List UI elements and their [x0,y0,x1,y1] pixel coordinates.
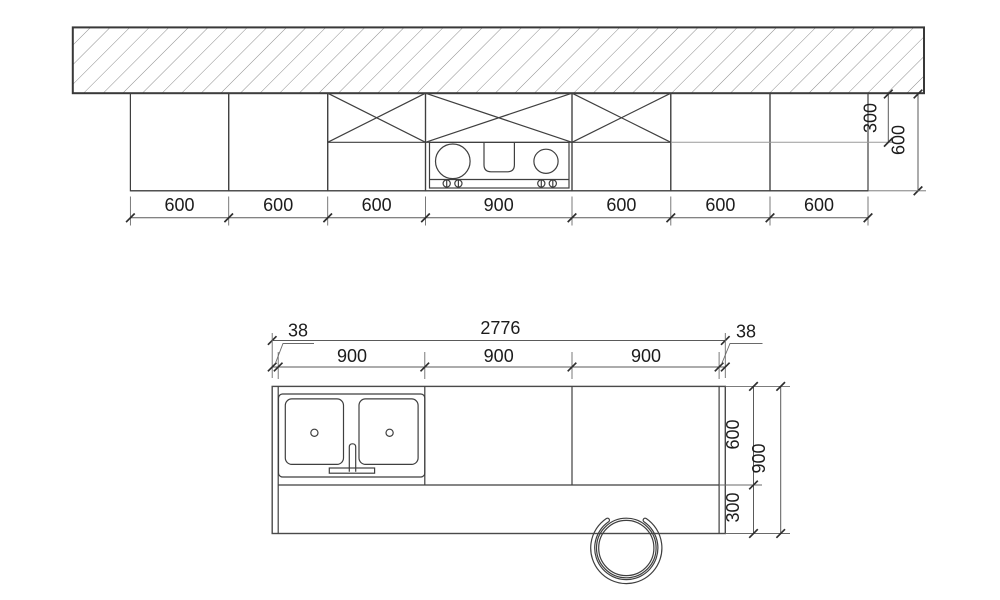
svg-text:600: 600 [164,195,194,215]
svg-text:900: 900 [484,346,514,366]
svg-text:600: 600 [889,125,909,155]
svg-text:600: 600 [263,195,293,215]
svg-text:300: 300 [723,492,743,522]
svg-text:600: 600 [362,195,392,215]
svg-text:600: 600 [606,195,636,215]
svg-text:600: 600 [804,195,834,215]
svg-text:900: 900 [337,346,367,366]
svg-text:900: 900 [631,346,661,366]
svg-text:600: 600 [705,195,735,215]
svg-text:38: 38 [288,321,308,341]
svg-text:300: 300 [860,103,880,133]
svg-text:38: 38 [736,322,756,342]
svg-text:2776: 2776 [480,318,520,338]
svg-text:600: 600 [723,419,743,449]
svg-text:900: 900 [749,443,769,473]
svg-text:900: 900 [484,195,514,215]
